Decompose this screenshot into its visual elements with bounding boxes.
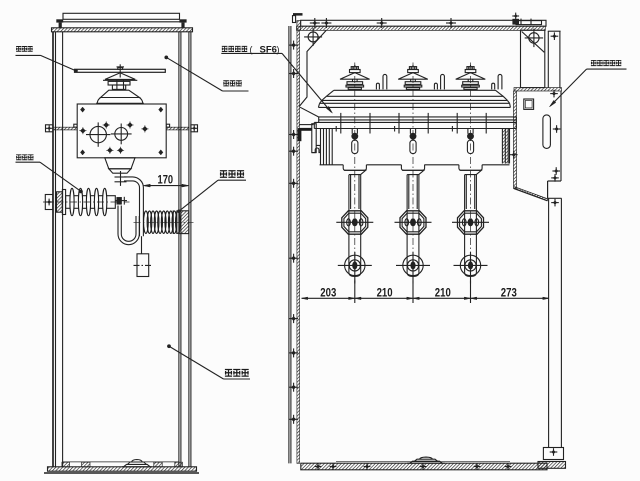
svg-text:210: 210	[377, 287, 393, 299]
svg-text:273: 273	[501, 287, 517, 299]
svg-text:203: 203	[320, 287, 336, 299]
svg-text:170: 170	[158, 175, 174, 187]
svg-text:210: 210	[435, 287, 451, 299]
